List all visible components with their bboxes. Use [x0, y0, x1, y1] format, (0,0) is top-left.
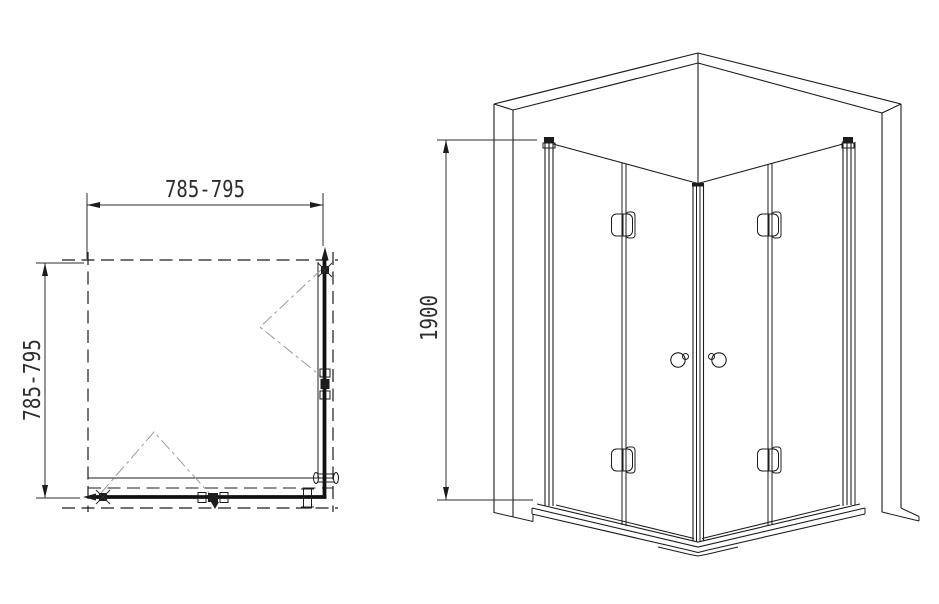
ceiling-edge-inner-right	[698, 63, 882, 113]
ceiling-edge-inner-left	[513, 63, 698, 110]
right-door-knob	[709, 353, 727, 367]
right-door-assembly	[698, 137, 855, 539]
glass-top-edge	[698, 144, 843, 184]
plan-wall-outlines	[62, 252, 338, 512]
hinge-tab	[772, 212, 781, 238]
tray-rim-outer	[532, 508, 865, 547]
plan-view: 785-795 785-795	[20, 177, 339, 512]
wall-profile-bracket	[842, 143, 854, 148]
left-door-assembly	[543, 137, 698, 539]
height-dimension-label: 1900	[417, 295, 443, 341]
wall-bracket-end	[334, 473, 339, 484]
hinge-bottom-left-door	[612, 447, 636, 473]
hinge-bottom-right-door	[758, 447, 782, 473]
perspective-view: 1900	[417, 53, 919, 556]
wall-profile-cap	[843, 137, 853, 143]
door-bottom-rail	[556, 505, 694, 539]
left-door-knob	[671, 353, 689, 367]
width-dimension-label: 785-795	[165, 177, 245, 203]
hinge-top-left-door	[612, 212, 636, 238]
fold-hinge-arrow-icon	[211, 502, 219, 509]
ceiling-edge-outer-left	[494, 53, 698, 104]
ceiling-edge-outer-right	[698, 53, 901, 104]
door-swing-line-right	[260, 269, 322, 377]
tray-rim-top	[537, 504, 860, 542]
corner-post-cap	[692, 183, 704, 187]
plan-inner-edges	[88, 262, 333, 478]
tray-front-foot	[658, 547, 738, 556]
dimension-arrow-icon	[42, 485, 48, 498]
corner-post	[692, 183, 704, 542]
door-bottom-rail	[702, 505, 840, 539]
hinge-tab	[626, 212, 635, 238]
dimension-arrow-icon	[443, 487, 449, 500]
left-wall-top-edge	[494, 104, 513, 110]
hinge-top-right-door	[758, 212, 782, 238]
pivot-arrow-icon	[322, 247, 329, 260]
dimension-arrow-icon	[42, 263, 48, 276]
depth-dimension-label: 785-795	[20, 339, 46, 421]
plan-fold-lines	[101, 269, 322, 493]
dimension-arrow-icon	[310, 202, 323, 208]
hinge-tab	[772, 447, 781, 473]
door-swing-line-bottom	[101, 432, 209, 493]
plan-depth-dimension: 785-795	[20, 263, 84, 498]
hinge-tab	[626, 447, 635, 473]
dimension-arrow-icon	[87, 202, 100, 208]
dimension-arrow-icon	[443, 140, 449, 153]
shower-enclosure-drawing: 785-795 785-795	[0, 0, 939, 604]
right-wall-base	[901, 508, 919, 517]
wall-profile-cap	[544, 137, 554, 143]
height-dimension: 1900	[417, 140, 537, 500]
plan-width-dimension: 785-795	[87, 177, 323, 259]
fold-hinge-body	[208, 493, 218, 502]
technical-drawing-page: 785-795 785-795	[0, 0, 939, 604]
fold-hinge-body	[321, 379, 330, 389]
plan-door-panels	[96, 260, 327, 499]
right-wall-top-edge	[882, 104, 901, 113]
pivot-arrow-icon	[83, 494, 96, 501]
